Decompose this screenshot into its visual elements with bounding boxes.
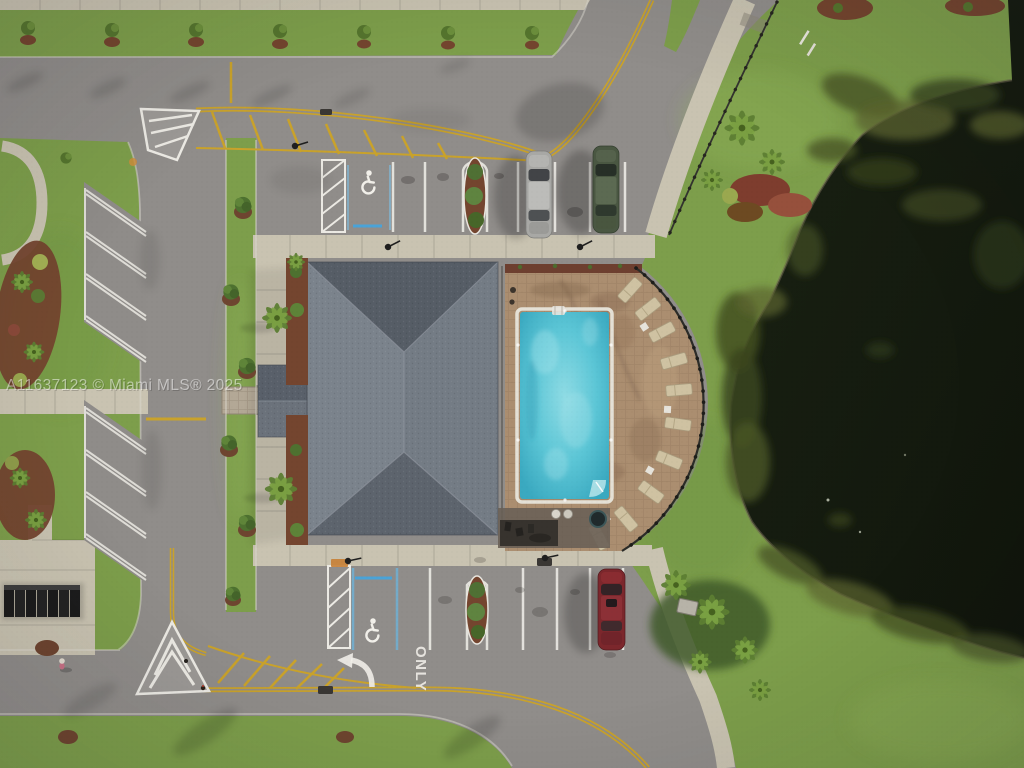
aerial-photo: ONLY bbox=[0, 0, 1024, 768]
vignette bbox=[0, 0, 1024, 768]
aerial-photo-canvas: ONLY bbox=[0, 0, 1024, 768]
